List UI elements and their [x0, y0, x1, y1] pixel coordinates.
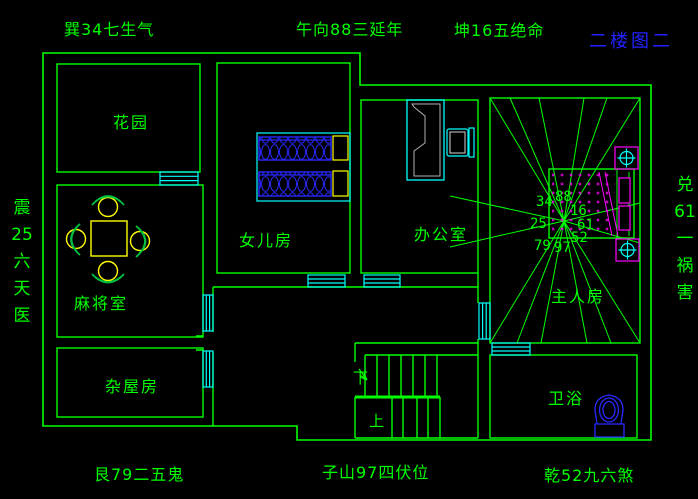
storage-label: 杂屋房	[105, 377, 159, 396]
floor-plan-canvas: 下 上	[0, 0, 698, 499]
compass-top-center: 午向88三延年	[296, 16, 403, 40]
pillow-2	[333, 171, 348, 196]
office-chair	[447, 128, 474, 157]
compass-top-right: 坤16五绝命	[454, 17, 544, 41]
luoshu-nw: 34	[536, 194, 553, 210]
daughter-label: 女儿房	[239, 231, 293, 250]
stairs-up-label: 上	[369, 412, 384, 430]
master-pillow-2	[619, 206, 630, 230]
sheet-title: 二楼图二	[589, 27, 673, 53]
compass-right-char: 一	[672, 226, 698, 253]
luoshu-w: 25	[530, 216, 547, 232]
hall-window-a	[308, 275, 345, 287]
luoshu-se: 52	[571, 230, 588, 246]
compass-right-char: 兑	[672, 172, 698, 199]
compass-right-char: 害	[672, 280, 698, 307]
daughter-beds	[257, 133, 350, 201]
office-room	[361, 100, 478, 273]
bed-1	[259, 136, 348, 160]
mahjong-chairs	[67, 198, 150, 281]
compass-bottom-left: 艮79二五鬼	[94, 461, 184, 485]
toilet	[595, 395, 624, 437]
storage-window	[203, 351, 213, 387]
compass-right-char: 61	[672, 199, 698, 226]
ceiling-fixture-top	[615, 147, 638, 169]
garden-label: 花园	[113, 113, 149, 132]
bathroom-label: 卫浴	[548, 389, 584, 408]
compass-top-left: 巽34七生气	[64, 16, 154, 40]
compass-left-char: 25	[9, 222, 35, 249]
desk-inner-shape	[412, 104, 440, 176]
stairs-down-label: 下	[353, 369, 368, 387]
compass-left-char: 震	[9, 195, 35, 222]
office-label: 办公室	[414, 225, 468, 244]
compass-left-char: 医	[9, 303, 35, 330]
master-left-window	[479, 303, 490, 339]
corridor-window-upper	[203, 295, 213, 331]
mahjong-room	[57, 185, 203, 337]
mahjong-label: 麻将室	[74, 294, 128, 313]
floor-plan-drawing: 下 上	[0, 0, 698, 499]
compass-bottom-center: 子山97四伏位	[322, 459, 429, 483]
luoshu-sw: 79	[534, 238, 551, 254]
compass-left-char: 天	[9, 276, 35, 303]
mahjong-table	[91, 221, 127, 256]
master-pillow-1	[619, 178, 630, 203]
mahjong-table-set	[67, 196, 150, 283]
office-furniture	[407, 100, 474, 180]
compass-left-column: 震 25 六 天 医	[9, 195, 35, 330]
bathroom-window	[492, 343, 530, 355]
pillow-1	[333, 136, 348, 160]
compass-bottom-right: 乾52九六煞	[544, 462, 634, 486]
hall-window-b	[364, 275, 400, 287]
ceiling-fixture-bottom	[616, 239, 639, 261]
compass-right-char: 祸	[672, 253, 698, 280]
bed-2	[259, 171, 348, 196]
compass-right-column: 兑 61 一 祸 害	[672, 172, 698, 307]
garden-window	[160, 172, 198, 185]
compass-left-char: 六	[9, 249, 35, 276]
chair-back-arcs	[71, 196, 146, 283]
luoshu-s: 97	[554, 240, 571, 256]
master-label: 主人房	[551, 287, 605, 306]
